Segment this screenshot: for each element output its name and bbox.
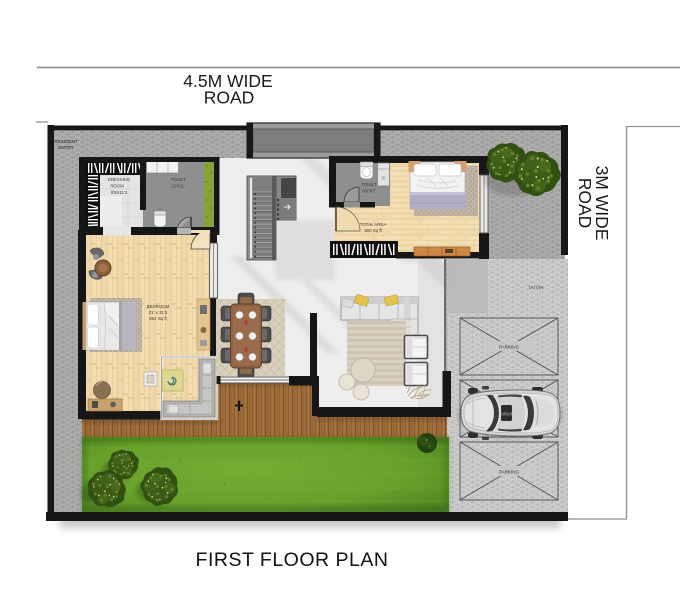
- svg-text:9'6"X7': 9'6"X7': [362, 189, 375, 194]
- svg-text:300 Sq ft: 300 Sq ft: [364, 228, 382, 233]
- svg-text:ROAD: ROAD: [204, 88, 255, 108]
- svg-text:TOTAL AREA: TOTAL AREA: [360, 222, 387, 227]
- svg-text:DRESSING: DRESSING: [108, 177, 131, 182]
- svg-text:FIRST FLOOR PLAN: FIRST FLOOR PLAN: [196, 549, 389, 571]
- svg-text:BEDROOM: BEDROOM: [147, 304, 170, 309]
- svg-text:PARKING: PARKING: [499, 345, 520, 350]
- svg-text:12'X11': 12'X11': [171, 184, 185, 189]
- svg-text:9'6X11'3: 9'6X11'3: [111, 190, 128, 195]
- svg-text:PARKING: PARKING: [499, 470, 520, 475]
- svg-text:ENTRY: ENTRY: [58, 145, 74, 150]
- svg-text:21' x 31'5: 21' x 31'5: [149, 310, 168, 315]
- svg-text:TOILET: TOILET: [171, 177, 186, 182]
- svg-text:RESIDENT: RESIDENT: [54, 139, 77, 144]
- svg-text:ROAD: ROAD: [575, 178, 595, 229]
- svg-text:TOILET: TOILET: [362, 182, 377, 187]
- svg-text:ROOM: ROOM: [110, 184, 124, 189]
- svg-text:654 Sq ft: 654 Sq ft: [149, 316, 167, 321]
- svg-text:OUT/IN: OUT/IN: [529, 285, 544, 290]
